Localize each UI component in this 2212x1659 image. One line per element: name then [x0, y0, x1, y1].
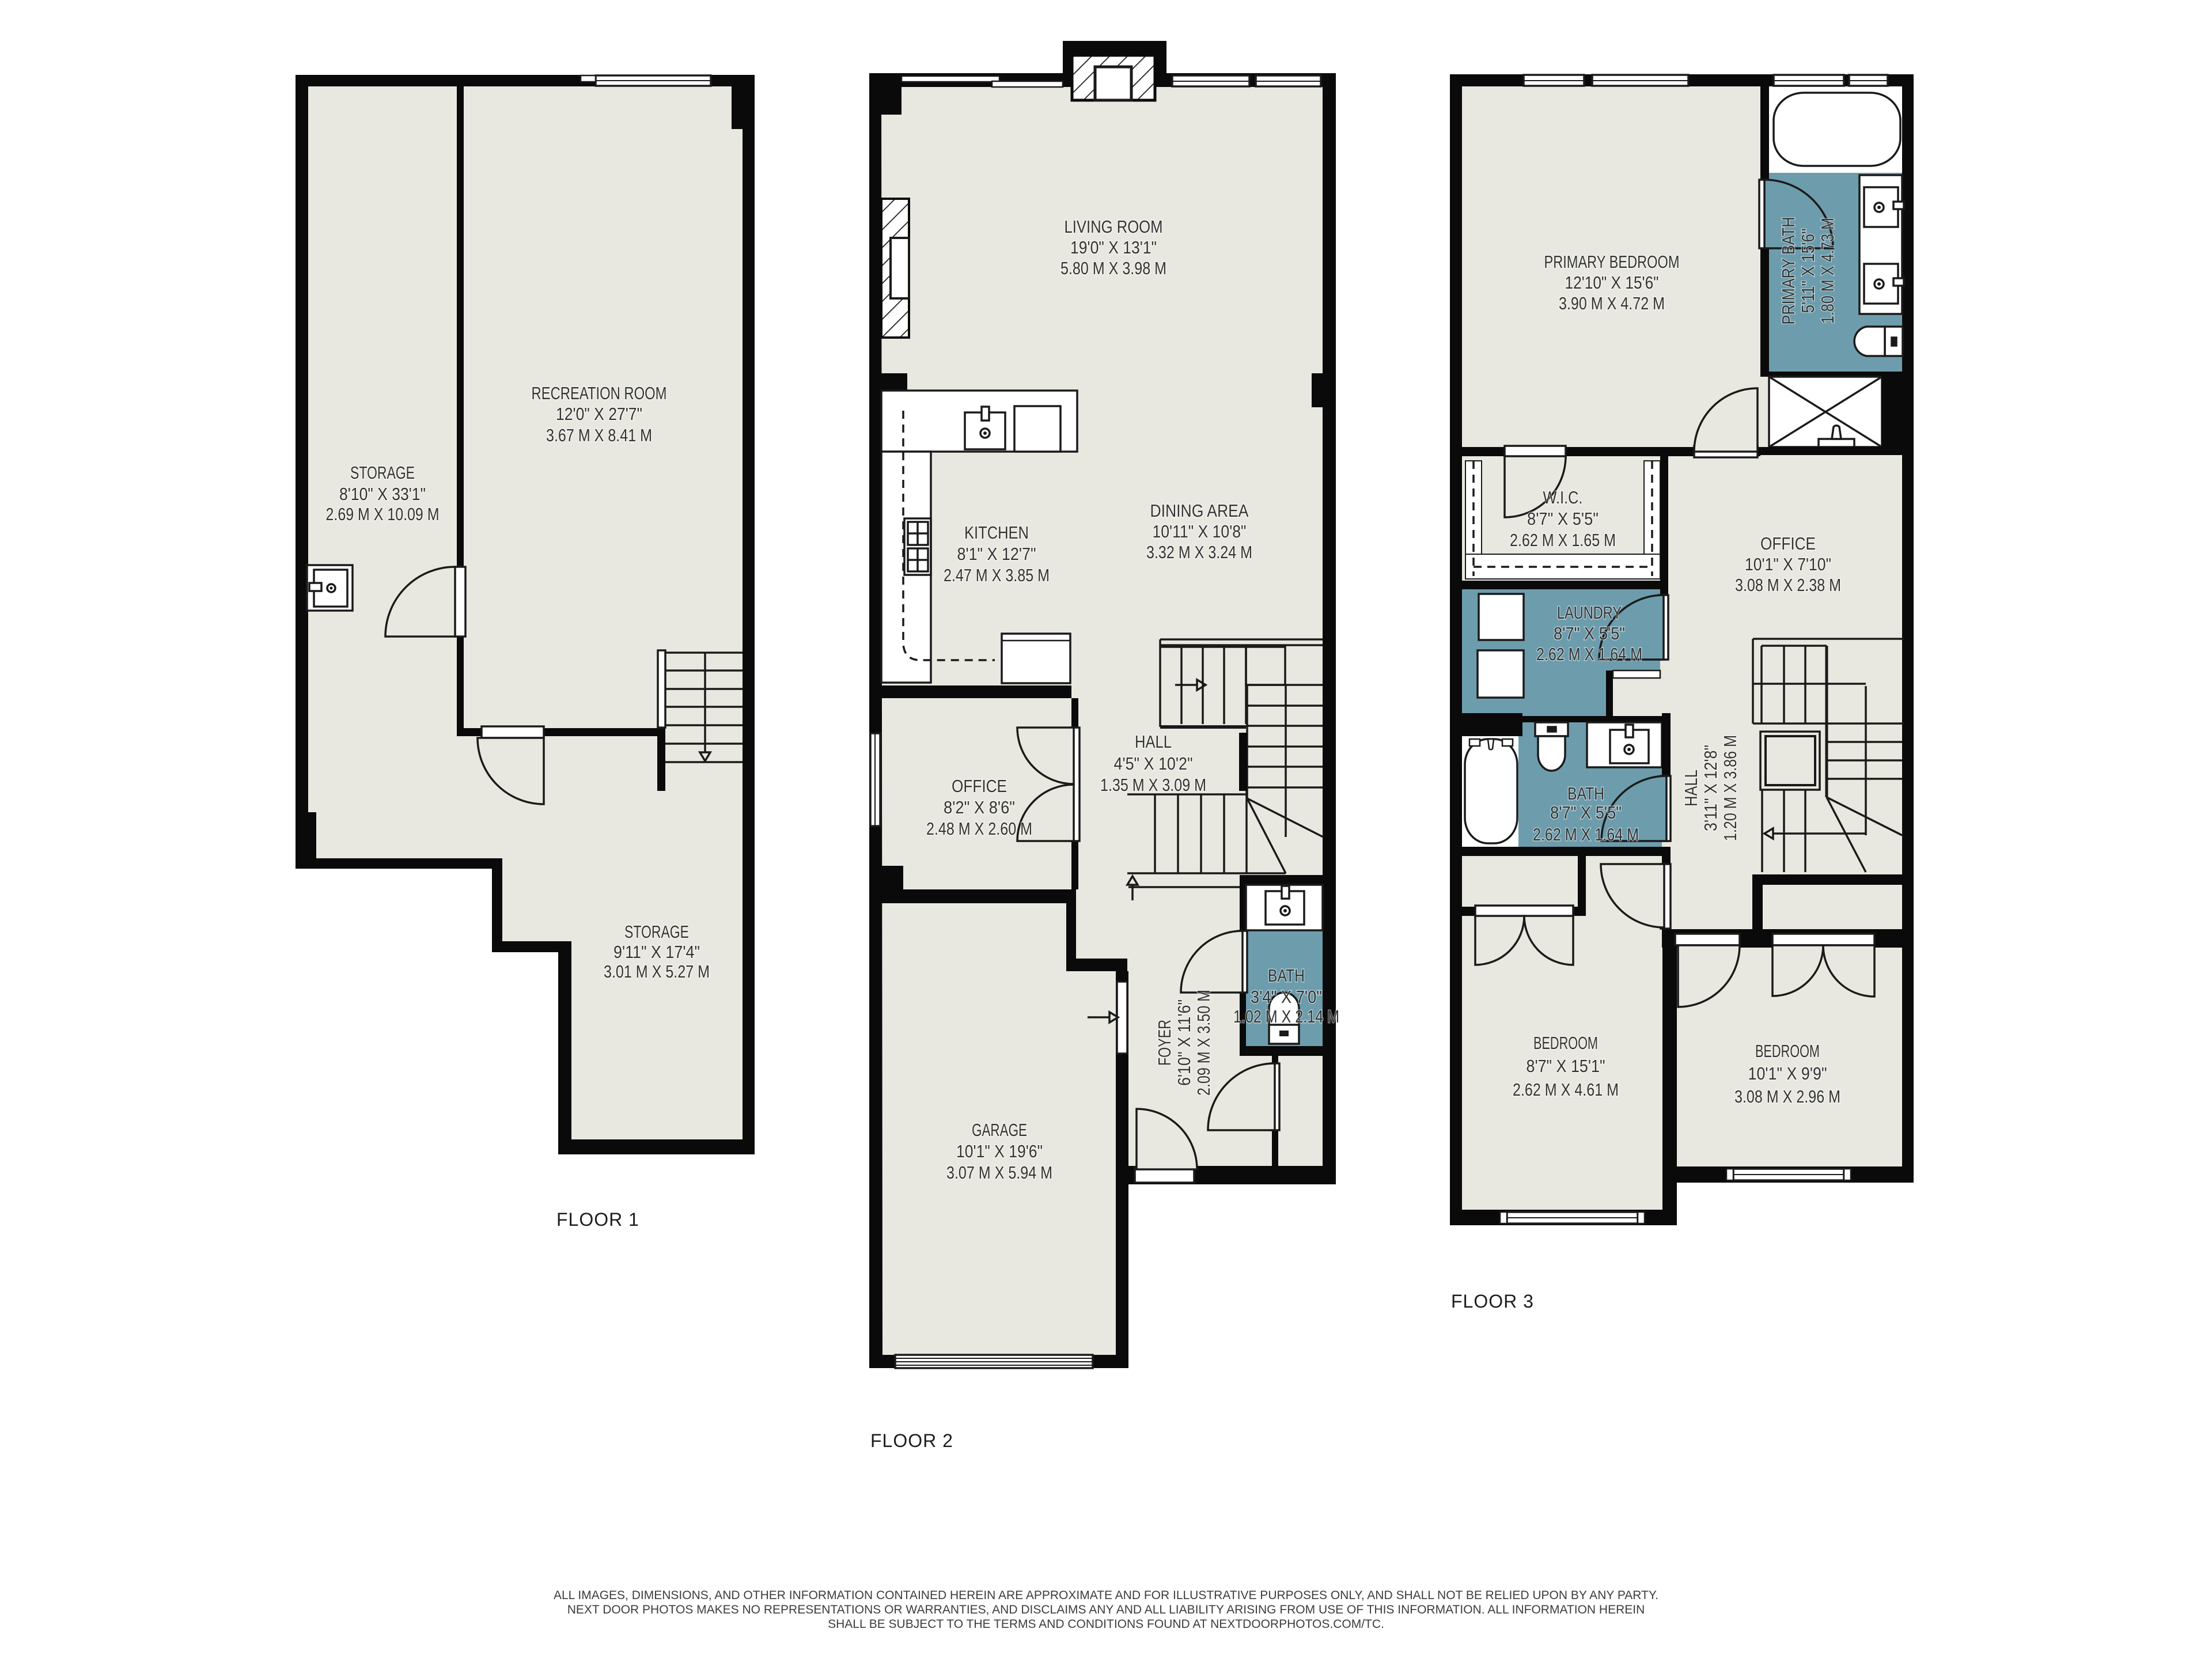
svg-text:12'0" X 27'7": 12'0" X 27'7" [556, 404, 642, 424]
svg-text:ALL IMAGES, DIMENSIONS, AND OT: ALL IMAGES, DIMENSIONS, AND OTHER INFORM… [554, 1589, 1658, 1602]
svg-text:12'10" X 15'6": 12'10" X 15'6" [1565, 272, 1659, 293]
svg-text:3'11" X 12'8": 3'11" X 12'8" [1700, 745, 1721, 831]
svg-text:2.47 M X 3.85 M: 2.47 M X 3.85 M [944, 565, 1050, 585]
svg-text:3.67 M X 8.41 M: 3.67 M X 8.41 M [546, 425, 652, 445]
svg-text:STORAGE: STORAGE [624, 922, 689, 942]
svg-text:OFFICE: OFFICE [952, 776, 1007, 796]
svg-text:DINING AREA: DINING AREA [1150, 501, 1249, 521]
svg-text:2.48 M X 2.60 M: 2.48 M X 2.60 M [926, 819, 1032, 839]
svg-text:2.62 M X 1.64 M: 2.62 M X 1.64 M [1533, 824, 1639, 844]
svg-text:OFFICE: OFFICE [1760, 533, 1816, 554]
svg-text:8'7" X 15'1": 8'7" X 15'1" [1527, 1056, 1605, 1076]
svg-text:3.90 M X 4.72 M: 3.90 M X 4.72 M [1559, 293, 1665, 313]
svg-text:3.32 M X 3.24 M: 3.32 M X 3.24 M [1146, 542, 1252, 562]
svg-text:8'7" X 5'5": 8'7" X 5'5" [1554, 623, 1625, 643]
svg-text:3'4" X 7'0": 3'4" X 7'0" [1251, 987, 1322, 1007]
svg-text:10'11" X 10'8": 10'11" X 10'8" [1153, 521, 1247, 541]
svg-text:STORAGE: STORAGE [350, 463, 415, 483]
svg-text:1.02 M X 2.14 M: 1.02 M X 2.14 M [1233, 1006, 1339, 1027]
svg-text:KITCHEN: KITCHEN [964, 522, 1029, 543]
svg-text:LIVING ROOM: LIVING ROOM [1065, 217, 1163, 237]
svg-text:1.35 M X 3.09 M: 1.35 M X 3.09 M [1100, 775, 1206, 795]
svg-text:2.62 M X 1.65 M: 2.62 M X 1.65 M [1510, 530, 1616, 550]
svg-text:PRIMARY BATH: PRIMARY BATH [1778, 217, 1798, 325]
svg-text:2.62 M X 1.64 M: 2.62 M X 1.64 M [1536, 644, 1642, 664]
svg-text:19'0" X 13'1": 19'0" X 13'1" [1070, 237, 1157, 257]
svg-text:3.08 M X 2.38 M: 3.08 M X 2.38 M [1735, 575, 1841, 595]
svg-text:1.80 M X 4.73 M: 1.80 M X 4.73 M [1817, 218, 1838, 324]
svg-text:FLOOR 2: FLOOR 2 [870, 1430, 953, 1451]
svg-text:NEXT DOOR PHOTOS MAKES NO REPR: NEXT DOOR PHOTOS MAKES NO REPRESENTATION… [567, 1603, 1645, 1616]
svg-text:HALL: HALL [1135, 732, 1172, 752]
svg-text:HALL: HALL [1681, 770, 1701, 806]
svg-text:SHALL BE SUBJECT TO THE TERMS: SHALL BE SUBJECT TO THE TERMS AND CONDIT… [828, 1618, 1384, 1631]
svg-text:RECREATION ROOM: RECREATION ROOM [532, 383, 667, 403]
svg-text:5.80 M X 3.98 M: 5.80 M X 3.98 M [1060, 258, 1166, 278]
svg-text:3.08 M X 2.96 M: 3.08 M X 2.96 M [1734, 1086, 1840, 1107]
svg-text:FLOOR 1: FLOOR 1 [556, 1209, 639, 1230]
svg-text:8'7" X 5'5": 8'7" X 5'5" [1550, 802, 1622, 823]
svg-text:BEDROOM: BEDROOM [1755, 1041, 1820, 1061]
svg-text:8'7" X 5'5": 8'7" X 5'5" [1527, 509, 1599, 529]
svg-text:8'1" X 12'7": 8'1" X 12'7" [957, 544, 1036, 564]
svg-text:5'11" X 15'6": 5'11" X 15'6" [1798, 229, 1818, 313]
svg-text:FLOOR 3: FLOOR 3 [1451, 1291, 1534, 1312]
svg-text:8'2" X 8'6": 8'2" X 8'6" [944, 797, 1015, 817]
svg-text:FOYER: FOYER [1154, 1020, 1175, 1066]
svg-text:8'10" X 33'1": 8'10" X 33'1" [339, 484, 426, 504]
svg-text:4'5" X 10'2": 4'5" X 10'2" [1114, 753, 1193, 774]
svg-text:10'1" X 7'10": 10'1" X 7'10" [1745, 554, 1831, 574]
svg-text:3.07 M X 5.94 M: 3.07 M X 5.94 M [946, 1162, 1052, 1183]
svg-text:BATH: BATH [1268, 965, 1305, 986]
svg-text:9'11" X 17'4": 9'11" X 17'4" [613, 942, 700, 962]
svg-text:10'1" X 9'9": 10'1" X 9'9" [1748, 1063, 1827, 1084]
svg-text:6'10" X 11'6": 6'10" X 11'6" [1174, 999, 1194, 1086]
svg-text:GARAGE: GARAGE [972, 1120, 1027, 1140]
svg-text:BATH: BATH [1567, 783, 1604, 804]
svg-text:2.69 M X 10.09 M: 2.69 M X 10.09 M [326, 504, 440, 524]
svg-text:10'1" X 19'6": 10'1" X 19'6" [956, 1141, 1043, 1161]
svg-text:PRIMARY BEDROOM: PRIMARY BEDROOM [1544, 252, 1680, 272]
svg-text:W.I.C.: W.I.C. [1543, 487, 1583, 507]
svg-text:3.01 M X 5.27 M: 3.01 M X 5.27 M [604, 961, 710, 982]
svg-text:2.09 M X 3.50 M: 2.09 M X 3.50 M [1194, 990, 1214, 1096]
svg-text:2.62 M X 4.61 M: 2.62 M X 4.61 M [1513, 1080, 1619, 1100]
svg-text:LAUNDRY: LAUNDRY [1557, 603, 1622, 623]
svg-text:BEDROOM: BEDROOM [1533, 1033, 1598, 1053]
svg-text:1.20 M X 3.86 M: 1.20 M X 3.86 M [1720, 735, 1740, 841]
